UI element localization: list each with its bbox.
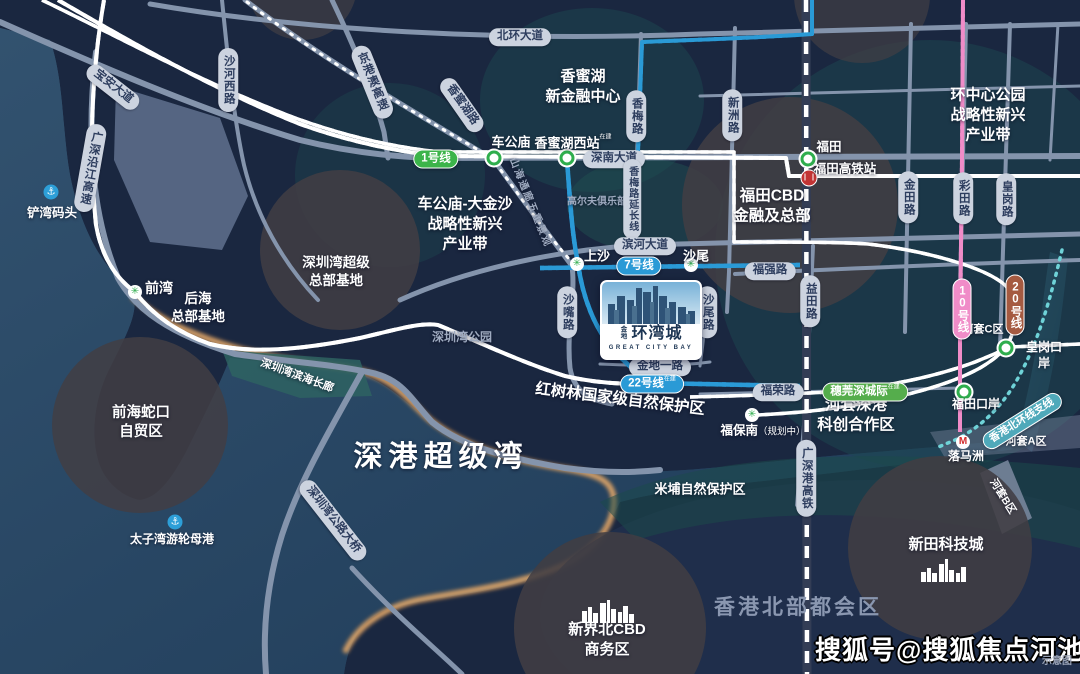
area-xintian-tech: 新田科技城 (908, 535, 983, 555)
area-hk-northern-metropolis: 香港北部都会区 (714, 594, 882, 622)
badge-line-10-label: 10号线 (956, 286, 968, 333)
rail-guangshengang-hsr: 广深港高铁 (796, 440, 816, 517)
station-marker-xiangmihu-west (560, 151, 575, 166)
road-furong-rd: 福荣路 (753, 383, 804, 401)
badge-line-20: 20号线 (1006, 275, 1025, 336)
area-houhai-hq: 后海 总部基地 (171, 290, 225, 326)
road-jinggangao-expwy: 京港澳高速 (349, 43, 396, 121)
area-hetao-b: 河套B区 (986, 477, 1018, 517)
badge-line-7: 7号线 (616, 257, 661, 276)
road-jintian-rd: 金田路 (898, 171, 918, 223)
metro-logo-icon-fubaonan: ✳ (745, 408, 759, 422)
badge-line-22-note: 在建 (664, 377, 676, 383)
area-maipo-reserve: 米埔自然保护区 (654, 480, 745, 497)
mtr-icon-lokmachau: M (956, 435, 970, 449)
property-name: 环湾城 (631, 325, 682, 342)
badge-intercity-note: 在建 (888, 385, 900, 391)
area-ring-park-belt: 环中心公园 战略性新兴 产业带 (950, 85, 1025, 144)
badge-line-22-label: 22号线 (628, 378, 664, 390)
map-canvas: 香蜜湖 新金融中心 环中心公园 战略性新兴 产业带 车公庙-大金沙 战略性新兴 … (0, 0, 1080, 674)
road-baoan-blvd: 宝安大道 (83, 61, 143, 113)
place-chanwan-pier: 铲湾码头 (27, 205, 77, 222)
badge-intercity-label: 穗莞深城际 (830, 386, 888, 398)
station-futian-hsr: 福田高铁站 (814, 161, 877, 178)
area-qianhai-ftz: 前海蛇口 自贸区 (112, 404, 170, 442)
road-szbay-bridge: 深圳湾公路大桥 (296, 477, 369, 564)
badge-line-22: 22号线在建 (620, 375, 684, 394)
area-golf-club: 高尔夫俱乐部 (567, 195, 627, 208)
station-lokmachau: 落马洲 (948, 449, 984, 465)
station-fubaonan-label: 福保南 (720, 424, 758, 438)
road-xiangmihu-rd: 香蜜湖路 (437, 75, 487, 136)
road-xiangmei-ext: 香梅路延长线 (623, 159, 641, 239)
station-xiangmihu-west-note: 在建 (600, 134, 612, 140)
area-xiangmihu-finance: 香蜜湖 新金融中心 (545, 67, 620, 107)
station-huanggang-port: 皇岗口岸 (1026, 340, 1062, 372)
road-shahe-west: 沙河西路 (218, 48, 238, 112)
anchor-icon-taiziwan: ⚓ (168, 515, 183, 530)
area-szbay-hq: 深圳湾超级 总部基地 (302, 254, 370, 290)
property-name-en: GREAT CITY BAY (602, 344, 700, 352)
metro-logo-icon-shangsha: ✳ (570, 257, 584, 271)
badge-intercity: 穗莞深城际在建 (822, 383, 908, 402)
road-yitian-rd: 益田路 (800, 275, 820, 327)
road-beihuan-blvd: 北环大道 (489, 28, 551, 46)
area-newterritories-cbd: 新界北CBD 商务区 (568, 620, 646, 660)
station-fubaonan-note: （规划中） (758, 427, 806, 438)
area-szbay-park: 深圳湾公园 (432, 330, 492, 346)
station-qianwan: 前湾 (145, 279, 173, 297)
station-marker-chegongmiao (487, 151, 502, 166)
road-xinzhou-rd: 新洲路 (722, 89, 742, 141)
area-hetao-coop: 河套深港 科创合作区 (817, 396, 895, 437)
badge-line-1: 1号线 (413, 150, 458, 169)
area-super-bay: 深港超级湾 (353, 438, 528, 476)
area-szbay-promenade: 深圳湾滨海长廊 (258, 356, 335, 396)
station-shawei: 沙尾 (683, 247, 709, 264)
station-futian: 福田 (816, 139, 841, 156)
road-xiangmei-rd: 香梅路 (626, 90, 646, 142)
road-guangshen-coastal-expwy: 广深沿江高速 (73, 122, 108, 213)
road-jindi-first-rd: 金地一路 (629, 358, 691, 376)
station-fubaonan: 福保南（规划中） (720, 423, 805, 440)
city-skyline-icon (580, 599, 636, 623)
area-futian-cbd: 福田CBD 金融及总部 (733, 187, 811, 228)
property-skyline-art (602, 282, 700, 324)
property-brand: 金地 (619, 327, 629, 341)
watermark-sohu: 搜狐号@搜狐焦点河池站 (815, 630, 1080, 667)
road-huanggang-rd: 皇岗路 (996, 173, 1016, 225)
badge-line-10: 10号线 (953, 279, 972, 340)
badge-line-20-label: 20号线 (1009, 282, 1021, 329)
station-marker-huanggang-port (999, 341, 1014, 356)
property-name-row: 金地环湾城 (602, 324, 700, 344)
city-skyline-icon (920, 558, 972, 582)
badge-line-1-label: 1号线 (421, 153, 450, 165)
property-photo (602, 282, 700, 324)
label-layer: 香蜜湖 新金融中心 环中心公园 战略性新兴 产业带 车公庙-大金沙 战略性新兴 … (0, 0, 1080, 674)
area-chegongmiao-belt: 车公庙-大金沙 战略性新兴 产业带 (418, 194, 513, 253)
station-xiangmihu-west-label: 香蜜湖西站 (534, 135, 599, 150)
badge-line-7-label: 7号线 (624, 260, 653, 272)
station-chegongmiao: 车公庙 (491, 133, 530, 150)
place-taiziwan-port: 太子湾游轮母港 (130, 532, 214, 548)
station-shangsha: 上沙 (584, 247, 610, 264)
station-futian-port: 福田口岸 (952, 397, 1000, 413)
watermark-corner-note: 示意图 (1042, 652, 1072, 667)
property-card: 金地环湾城 GREAT CITY BAY (600, 280, 702, 360)
area-shanhai-corridor: 山海通廊五重景观 (506, 156, 554, 250)
road-shazui-rd: 沙嘴路 (557, 286, 577, 338)
road-binhe-blvd: 滨河大道 (614, 237, 676, 255)
station-xiangmihu-west: 香蜜湖西站在建 (534, 134, 611, 151)
anchor-icon-chanwan: ⚓ (44, 185, 59, 200)
road-caitian-rd: 彩田路 (953, 172, 973, 224)
road-fuqiang-rd: 福强路 (745, 262, 796, 280)
metro-logo-icon-qianwan: ✳ (128, 285, 142, 299)
